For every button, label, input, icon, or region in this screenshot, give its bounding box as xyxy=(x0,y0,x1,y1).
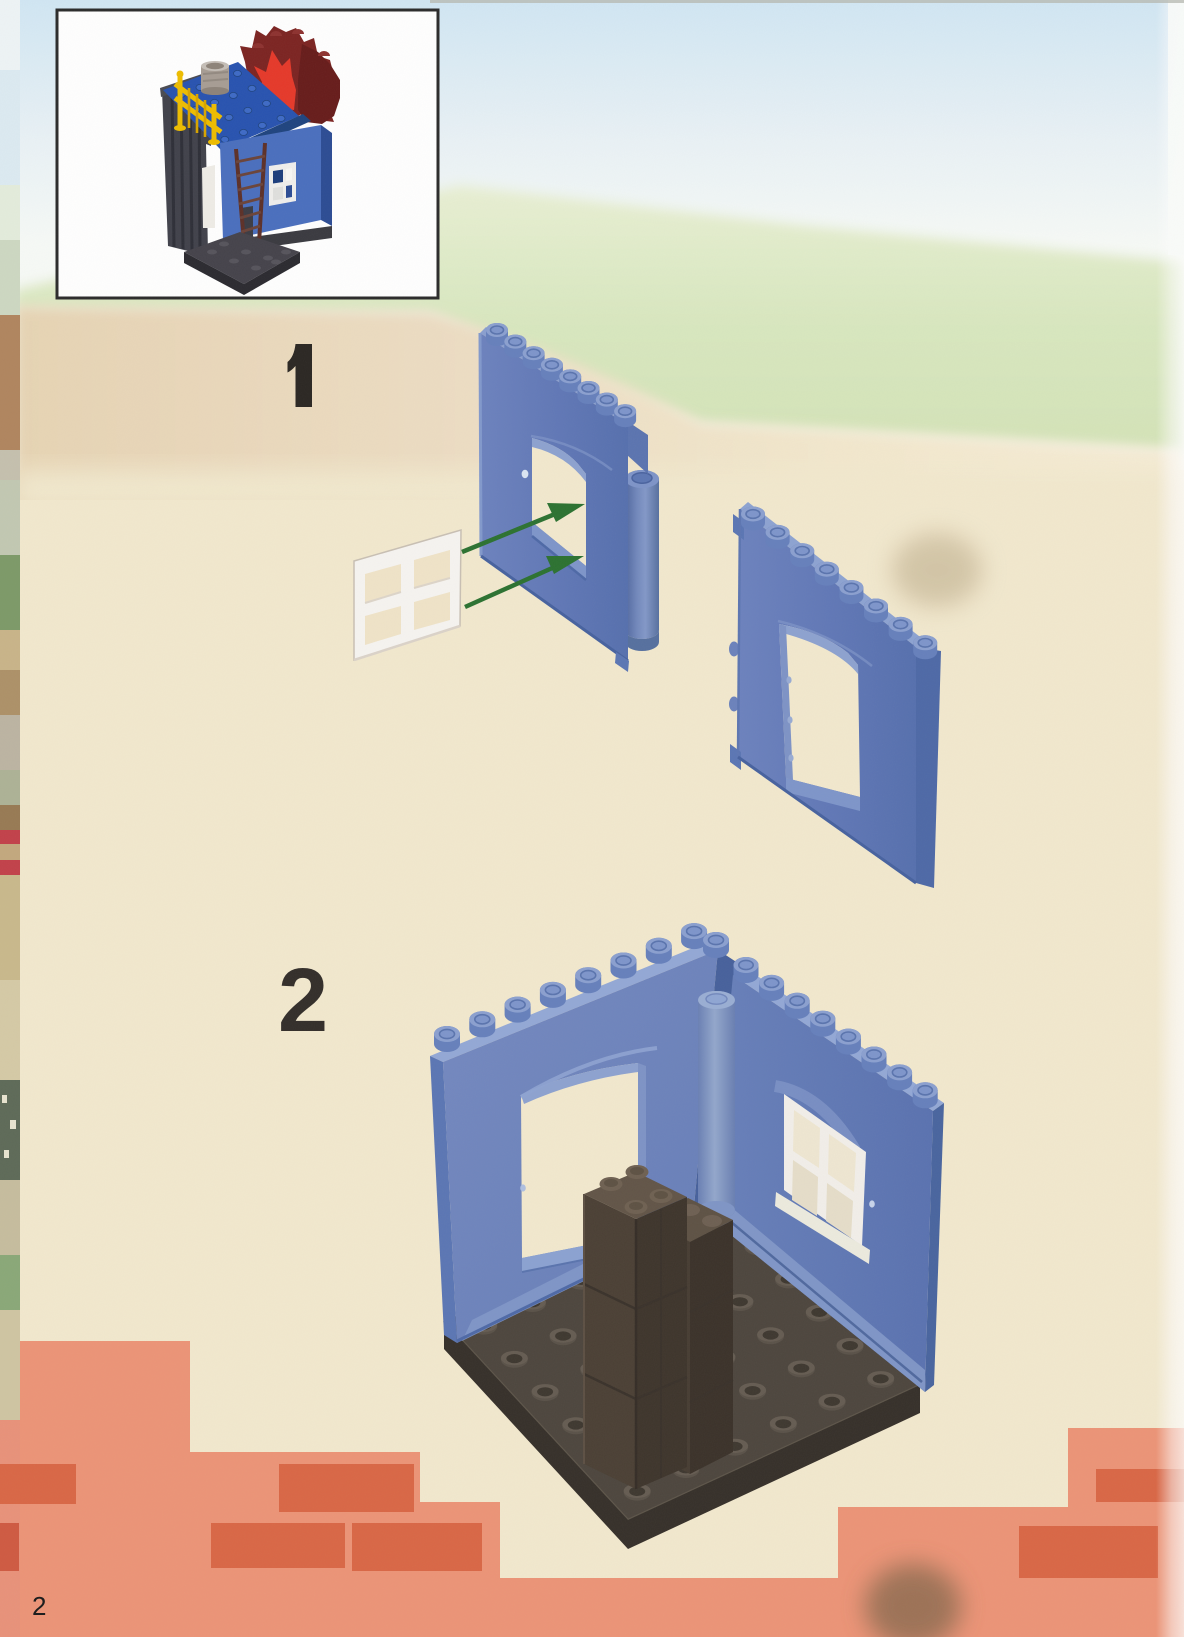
svg-text:2: 2 xyxy=(32,1591,46,1621)
svg-text:2: 2 xyxy=(278,951,328,1051)
